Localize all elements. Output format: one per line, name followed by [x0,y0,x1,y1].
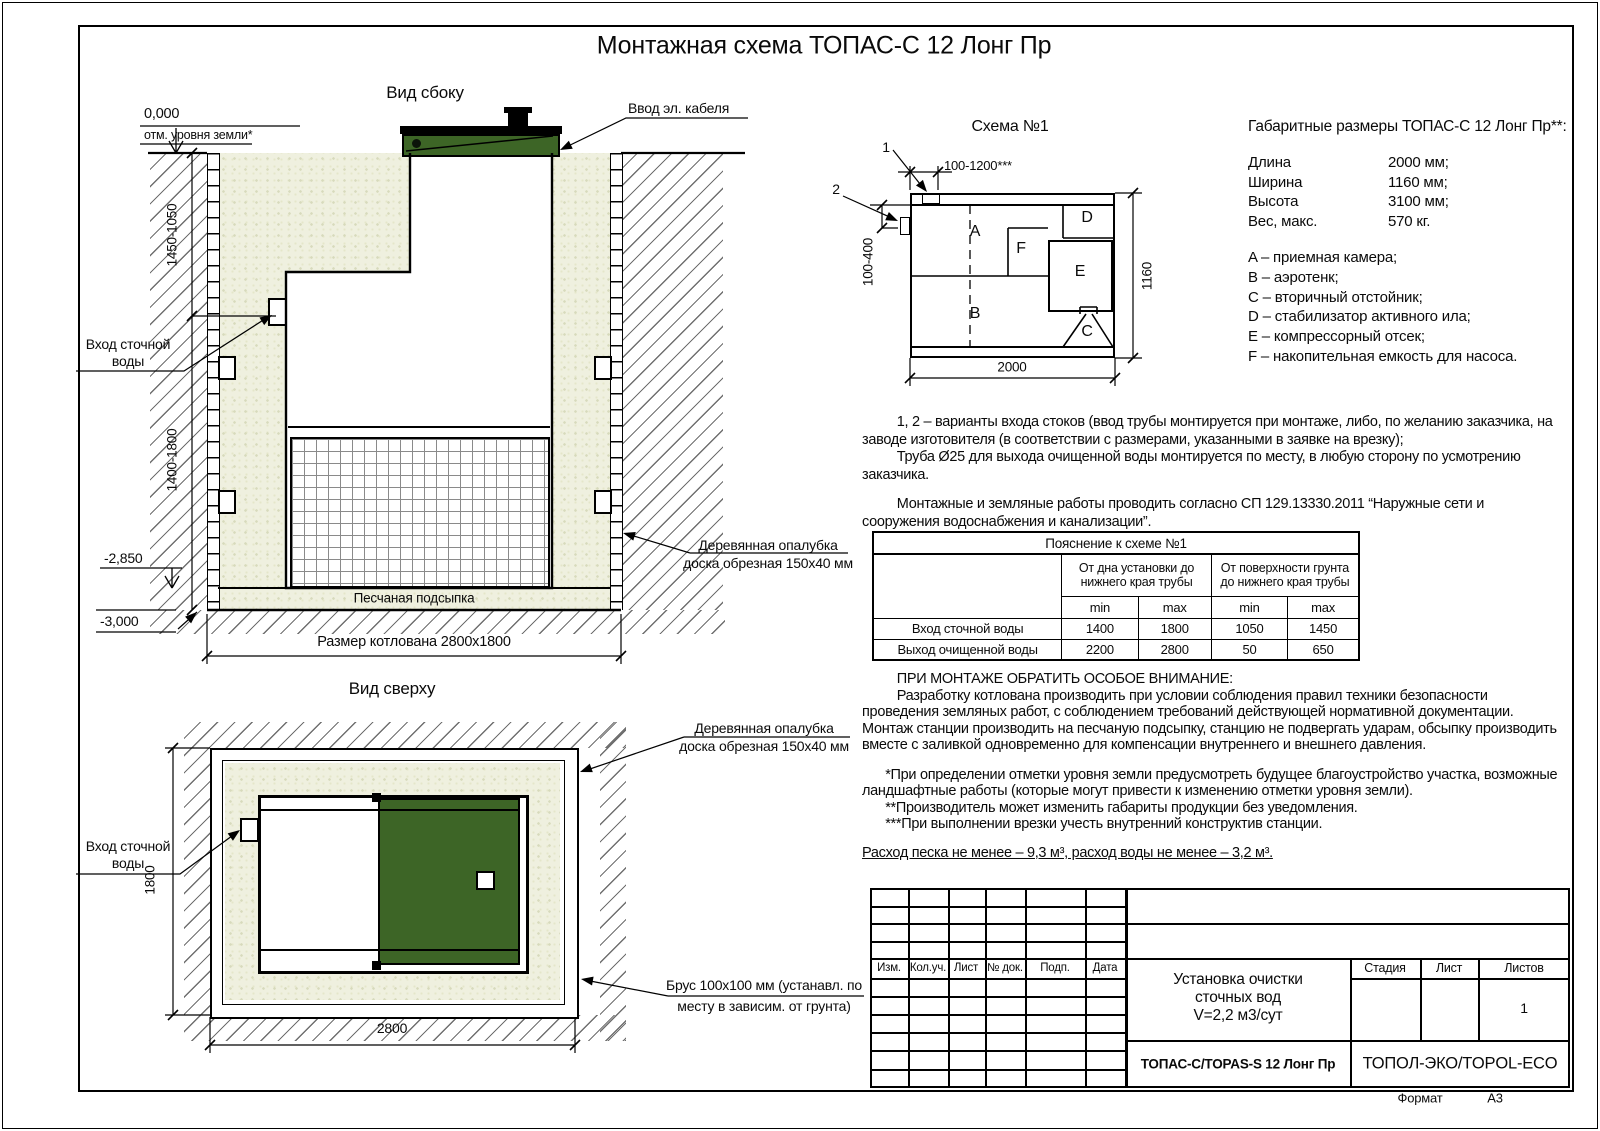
dim-depth-lower: 1400-1800 [165,429,180,492]
notes-block: 1, 2 – варианты входа стоков (ввод трубы… [862,414,1562,531]
brus-label-1: Брус 100х100 мм (устанавл. по [666,977,862,993]
stamp-line [948,888,950,1088]
top-view-title: Вид сверху [349,679,436,699]
stamp-line [1025,888,1027,1088]
note-outlet-pipe: Труба Ø25 для выхода очищенной воды монт… [862,449,1562,484]
cell-value: 650 [1288,639,1359,660]
stamp-col-koluch: Кол.уч. [910,962,946,974]
stamp-model: ТОПАС-С/TOPAS-S 12 Лонг Пр [1141,1057,1336,1072]
note-inlet-variants: 1, 2 – варианты входа стоков (ввод трубы… [862,414,1562,449]
legend-item: F – накопительная емкость для насоса. [1248,347,1517,367]
cell-value: 2800 [1138,639,1211,660]
legend-item: B – аэротенк; [1248,268,1517,288]
dim-depth-upper: 1450-1050 [165,204,180,267]
specs-row: Длина2000 мм; [1248,153,1449,173]
stamp-line [1085,888,1087,1088]
top-hatch-left [184,722,210,1041]
compartment-c-label: C [1081,323,1092,341]
side-formwork-label-2: доска обрезная 150х40 мм [683,555,853,571]
specs-row: Высота3100 мм; [1248,192,1449,212]
schema-marker-1: 1 [882,139,890,155]
stamp-company: ТОПОЛ-ЭКО/TOPOL-ECO [1363,1055,1558,1074]
row-label: Вход сточной воды [873,618,1062,639]
side-formwork-right [610,153,623,610]
col-max: max [1288,596,1359,618]
side-formwork-left [207,153,220,610]
zero-level-label: 0,000 [144,106,179,122]
ground-level-note: отм. уровня земли* [144,128,252,142]
schema-inlet-variant-2 [900,217,910,235]
pit-size-label: Размер котлована 2800х1800 [317,634,510,650]
attention-block: ПРИ МОНТАЖЕ ОБРАТИТЬ ОСОБОЕ ВНИМАНИЕ: Ра… [862,671,1562,861]
spec-label: Длина [1248,153,1388,173]
stamp-line [1478,958,1480,1040]
lid-vent-pipe [508,112,528,127]
stamp-line [870,1014,1125,1016]
stamp-line [1350,978,1570,980]
schema-inlet-variant-1 [922,194,940,204]
legend-item: E – компрессорный отсек; [1248,327,1517,347]
col-group-from-bottom: От дна установки до нижнего края трубы [1062,554,1212,596]
schema-title: Схема №1 [971,118,1048,136]
table-row: Выход очищенной воды 2200 2800 50 650 [873,639,1359,660]
stamp-col-podp: Подп. [1040,962,1070,974]
specs-row: Вес, макс.570 кг. [1248,212,1449,232]
table-row: Вход сточной воды 1400 1800 1050 1450 [873,618,1359,639]
page-title: Монтажная схема ТОПАС-С 12 Лонг Пр [597,32,1052,61]
schema-dim-bottom: 2000 [997,360,1026,375]
stamp-sheets-label: Листов [1504,961,1543,975]
side-wall-block [218,490,236,514]
lid-vent-cap [504,107,532,113]
format-label: Формат [1398,1091,1443,1106]
side-view-title: Вид сбоку [386,83,464,103]
level-minus-3000: -3,000 [100,613,139,629]
top-dim-width: 2800 [377,1020,407,1036]
legend-item: D – стабилизатор активного ила; [1248,307,1517,327]
stamp-sheet-label: Лист [1436,961,1462,975]
col-group-from-surface: От поверхности грунта до нижнего края тр… [1211,554,1359,596]
explanation-table-title: Пояснение к схеме №1 [873,532,1359,554]
schema-marker-2: 2 [832,181,840,197]
cell-value: 2200 [1062,639,1138,660]
compartment-b-label: B [970,305,980,323]
note-sp-standard: Монтажные и земляные работы проводить со… [862,496,1562,531]
stamp-line [985,888,987,1088]
format-value: А3 [1487,1091,1503,1106]
side-wall-block [594,356,612,380]
top-hatch-right [600,722,626,1041]
side-formwork-label-1: Деревянная опалубка [698,537,837,553]
top-inlet-label-2: воды [112,855,144,871]
brus-label-2: месту в зависим. от грунта) [677,998,850,1014]
top-inlet-pipe-stub [240,818,259,842]
cell-value: 1800 [1138,618,1211,639]
spec-label: Вес, макс. [1248,212,1388,232]
stamp-line [870,1050,1125,1052]
footnote-cutting: ***При выполнении врезки учесть внутренн… [862,816,1562,833]
col-min: min [1062,596,1138,618]
schema-dim-right: 1160 [1140,262,1155,290]
compartment-a-label: A [970,223,980,241]
stamp-sheets-value: 1 [1520,1000,1528,1016]
compartment-e-label: E [1075,263,1085,281]
lid-hinge [372,961,381,970]
stamp-col-data: Дата [1093,962,1118,974]
side-unit-neck [410,153,552,274]
lid-lock [412,139,421,148]
stamp-line [870,958,1570,960]
lid-top-band [400,126,562,134]
doc-title-line3: V=2,2 м3/сут [1193,1007,1282,1025]
attention-body: Разработку котлована производить при усл… [862,688,1562,754]
compartment-d-label: D [1081,209,1092,227]
spec-label: Высота [1248,192,1388,212]
cell-value: 50 [1211,639,1287,660]
stamp-line [908,888,910,1088]
side-wall-block [218,356,236,380]
legend-item: C – вторичный отстойник; [1248,288,1517,308]
level-minus-2850: -2,850 [104,550,143,566]
side-inlet-label-2: воды [112,353,144,369]
attention-heading: ПРИ МОНТАЖЕ ОБРАТИТЬ ОСОБОЕ ВНИМАНИЕ: [862,671,1562,688]
spec-value: 570 кг. [1388,212,1430,232]
stamp-line [870,1069,1125,1071]
cable-entry-label: Ввод эл. кабеля [628,100,729,116]
side-wall-block [594,490,612,514]
drawing-sheet: Монтажная схема ТОПАС-С 12 Лонг Пр Вид с… [0,0,1600,1131]
doc-title-line1: Установка очистки [1173,971,1302,989]
col-min: min [1211,596,1287,618]
stamp-line [1420,958,1422,1040]
footnote-ground-level: *При определении отметки уровня земли пр… [862,767,1562,800]
top-lid-hatch-opening [476,871,495,890]
spec-value: 2000 мм; [1388,153,1449,173]
compartment-legend: A – приемная камера; B – аэротенк; C – в… [1248,248,1517,367]
specs-row: Ширина1160 мм; [1248,173,1449,193]
side-soil-hatch-bottom [150,610,725,634]
footnote-dimensions: **Производитель может изменить габариты … [862,800,1562,817]
doc-title-line2: сточных вод [1195,989,1281,1007]
stamp-stage-label: Стадия [1364,961,1405,975]
stamp-col-list: Лист [954,962,978,974]
stamp-line [870,996,1125,998]
stamp-line [1125,888,1128,1088]
top-formwork-label-1: Деревянная опалубка [694,720,833,736]
col-max: max [1138,596,1211,618]
top-formwork-label-2: доска обрезная 150х40 мм [679,738,849,754]
table-corner-cell [873,554,1062,618]
stamp-line [870,1032,1125,1034]
specs-rows: Длина2000 мм; Ширина1160 мм; Высота3100 … [1248,153,1449,231]
stamp-col-doc: № док. [987,962,1023,974]
compartment-f-label: F [1016,240,1026,258]
unit-green-lid [402,134,560,157]
stamp-col-izm: Изм. [877,962,901,974]
side-inlet-label-1: Вход сточной [86,336,171,352]
schema-dim-top: 100-1200*** [944,158,1012,173]
explanation-table: Пояснение к схеме №1 От дна установки до… [872,531,1360,661]
spec-value: 3100 мм; [1388,192,1449,212]
stamp-line [870,906,1125,908]
stamp-line [870,941,1125,943]
stamp-line [1125,1040,1570,1042]
top-unit-green-lid [378,798,520,965]
schema-dim-left: 100-400 [861,238,876,286]
lid-hinge [372,793,381,802]
cell-value: 1050 [1211,618,1287,639]
specs-title: Габаритные размеры ТОПАС-С 12 Лонг Пр**: [1248,118,1567,136]
legend-item: A – приемная камера; [1248,248,1517,268]
row-label: Выход очищенной воды [873,639,1062,660]
side-inlet-pipe-stub [268,298,287,326]
spec-value: 1160 мм; [1388,173,1448,193]
stamp-line [870,923,1570,925]
stamp-line [870,978,1125,980]
material-consumption-note: Расход песка не менее – 9,3 м³, расход в… [862,845,1562,862]
top-dim-height: 1800 [143,865,158,894]
side-unit-mesh-section [290,437,550,588]
cell-value: 1450 [1288,618,1359,639]
cell-value: 1400 [1062,618,1138,639]
spec-label: Ширина [1248,173,1388,193]
top-inlet-label-1: Вход сточной [86,838,171,854]
sand-bedding-label: Песчаная подсыпка [354,591,475,606]
top-hatch-top [184,722,626,748]
